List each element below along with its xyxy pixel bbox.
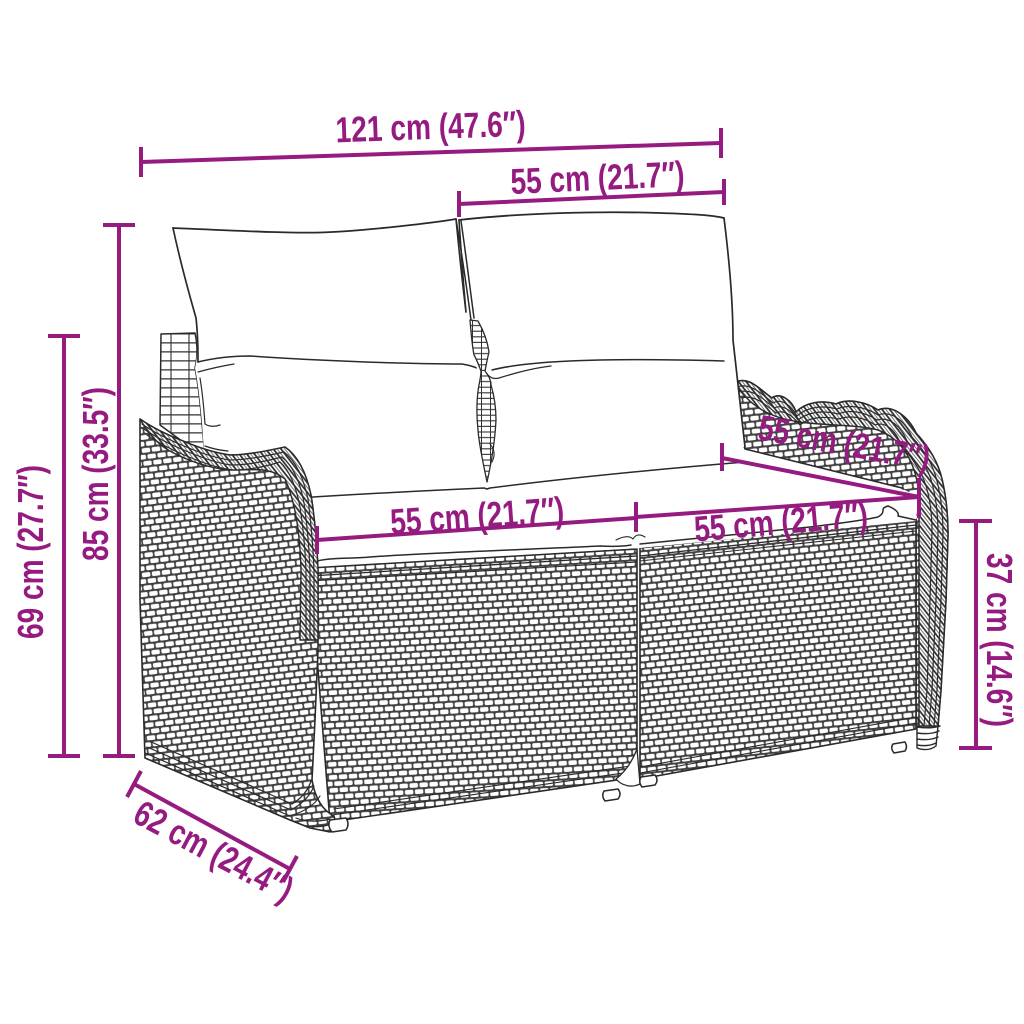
svg-text:55 cm (21.7″): 55 cm (21.7″) (510, 153, 686, 202)
svg-text:37 cm (14.6″): 37 cm (14.6″) (979, 553, 1020, 727)
svg-text:69 cm (27.7″): 69 cm (27.7″) (10, 465, 51, 639)
svg-text:121 cm (47.6″): 121 cm (47.6″) (335, 103, 526, 151)
svg-text:85 cm (33.5″): 85 cm (33.5″) (75, 387, 116, 561)
